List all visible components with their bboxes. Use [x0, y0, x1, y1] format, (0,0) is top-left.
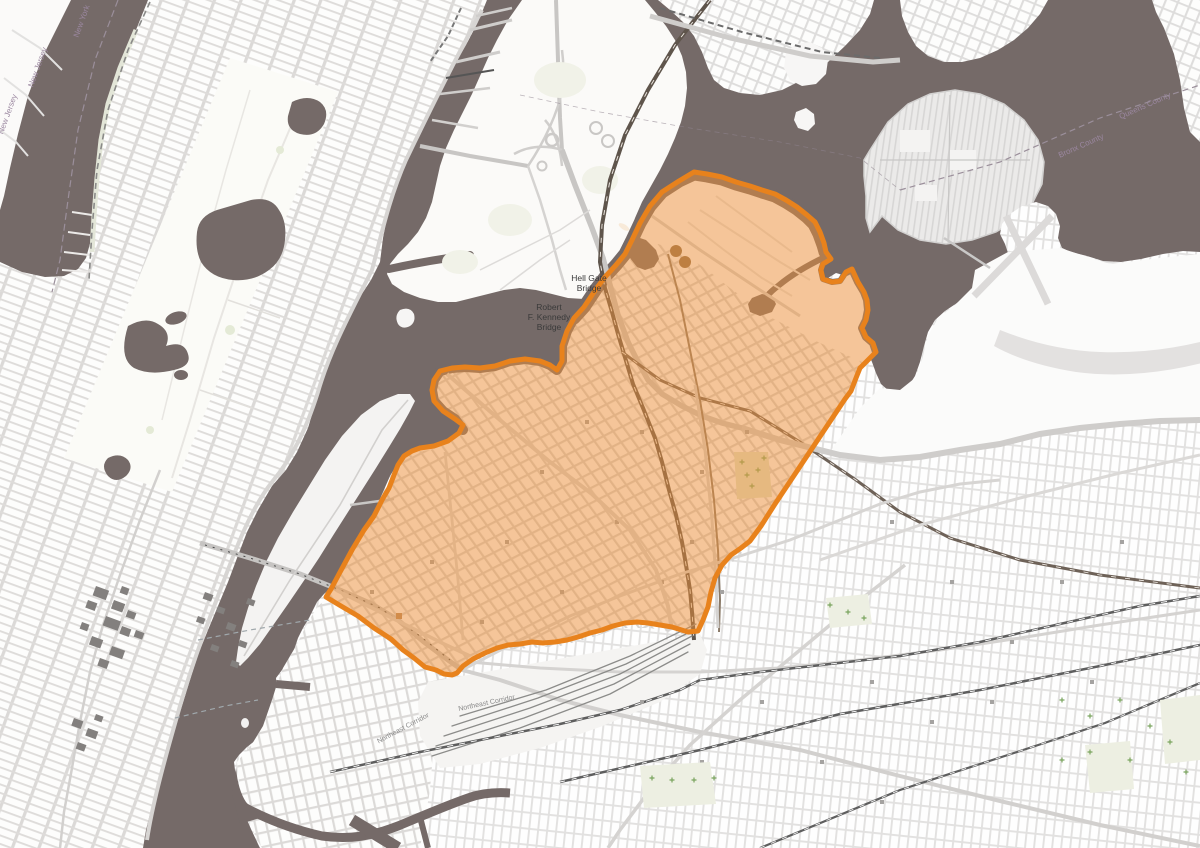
svg-text:Robert: Robert: [536, 302, 562, 312]
svg-text:Bridge: Bridge: [537, 322, 562, 332]
svg-text:Hell Gate: Hell Gate: [571, 273, 607, 283]
svg-text:Bridge: Bridge: [577, 283, 602, 293]
svg-text:F. Kennedy: F. Kennedy: [528, 312, 571, 322]
